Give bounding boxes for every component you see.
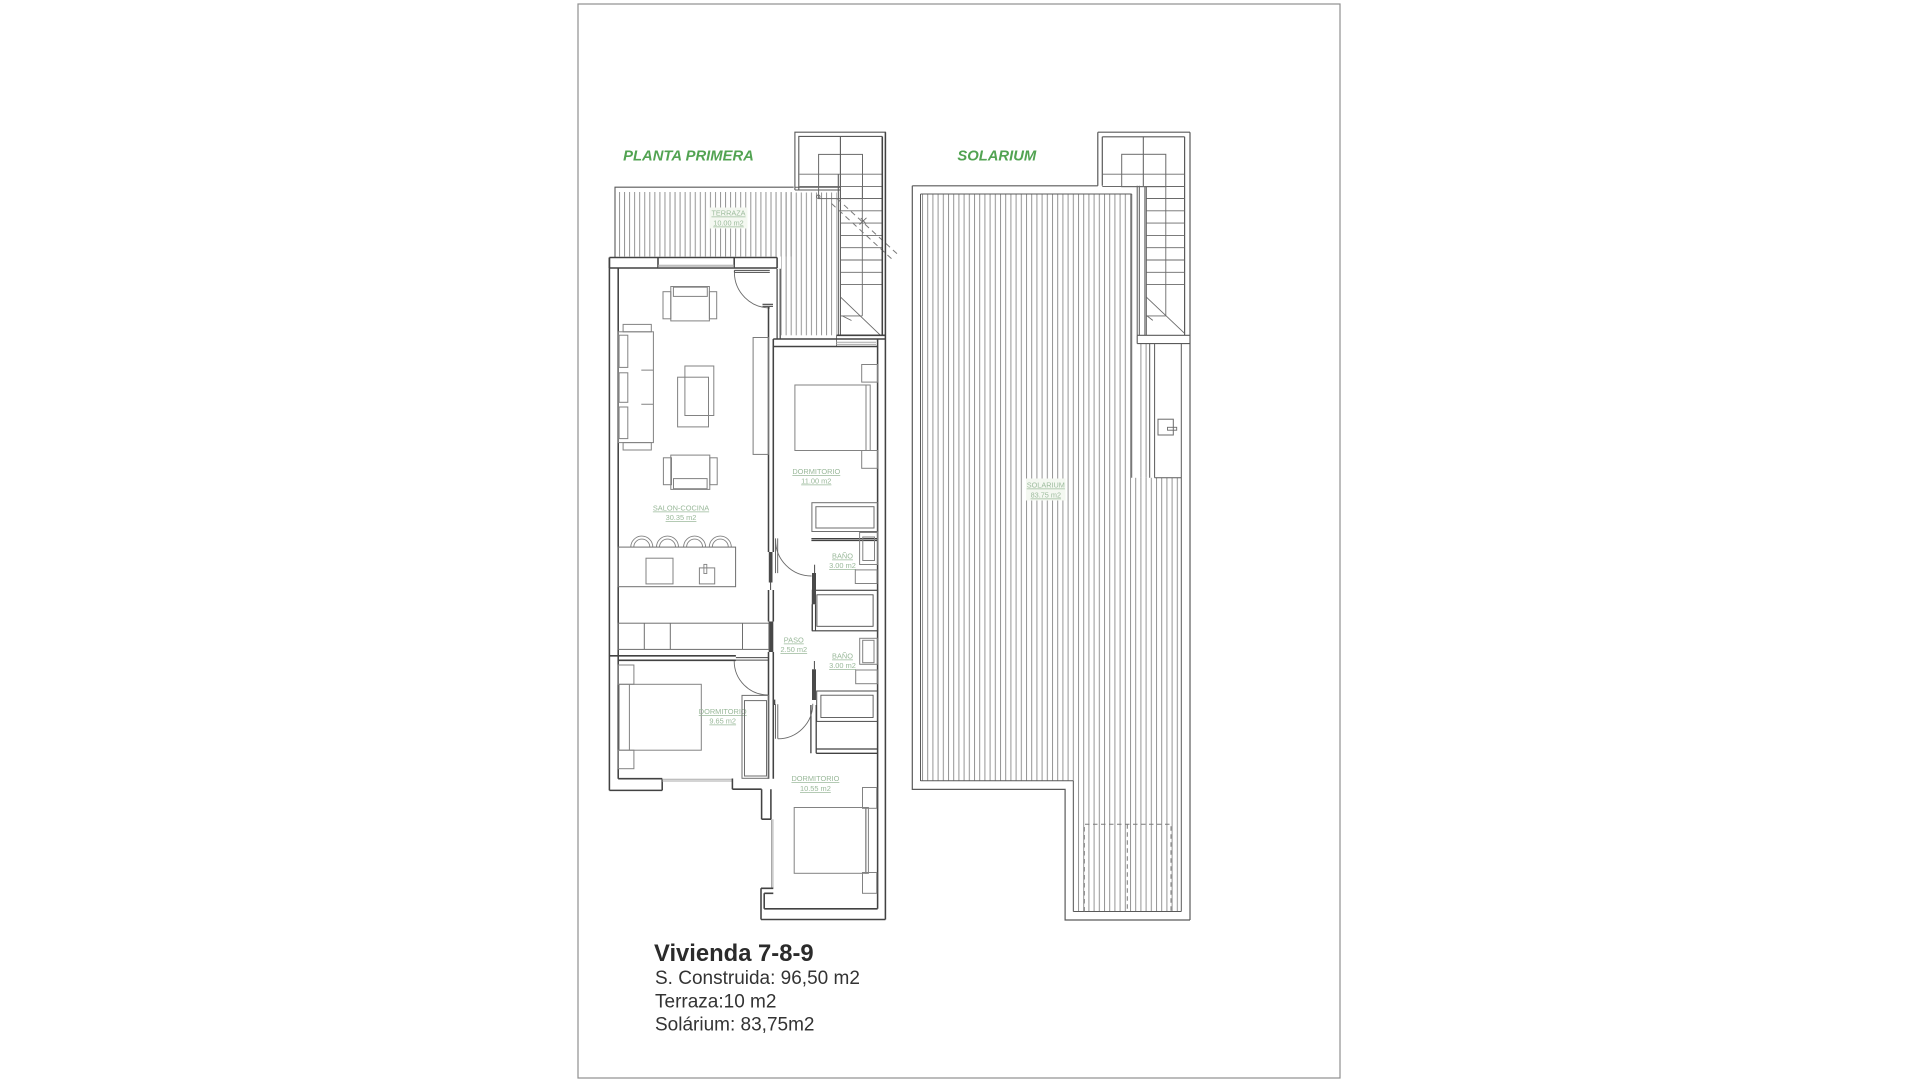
svg-text:DORMITORIO: DORMITORIO — [791, 774, 839, 783]
svg-text:SALON-COCINA: SALON-COCINA — [653, 504, 709, 513]
svg-text:30.35 m2: 30.35 m2 — [666, 513, 697, 522]
svg-text:SOLARIUM: SOLARIUM — [957, 149, 1037, 165]
svg-text:3.00 m2: 3.00 m2 — [829, 561, 856, 570]
svg-text:TERRAZA: TERRAZA — [711, 209, 745, 218]
svg-text:Terraza:10 m2: Terraza:10 m2 — [655, 991, 776, 1012]
svg-text:SOLARIUM: SOLARIUM — [1027, 481, 1065, 490]
svg-text:DORMITORIO: DORMITORIO — [792, 467, 840, 476]
svg-text:DORMITORIO: DORMITORIO — [699, 707, 747, 716]
svg-text:11.00 m2: 11.00 m2 — [801, 477, 831, 486]
svg-text:10.00 m2: 10.00 m2 — [713, 219, 743, 228]
svg-text:83.75 m2: 83.75 m2 — [1031, 491, 1061, 500]
svg-text:9.65 m2: 9.65 m2 — [709, 717, 736, 726]
svg-text:3.00 m2: 3.00 m2 — [829, 661, 856, 670]
svg-text:PLANTA PRIMERA: PLANTA PRIMERA — [623, 149, 754, 165]
svg-text:10.55 m2: 10.55 m2 — [800, 784, 831, 793]
svg-text:S. Construida: 96,50 m2: S. Construida: 96,50 m2 — [655, 968, 860, 989]
svg-text:BAÑO: BAÑO — [832, 652, 853, 661]
svg-text:Solárium: 83,75m2: Solárium: 83,75m2 — [655, 1014, 814, 1035]
svg-text:Vivienda 7-8-9: Vivienda 7-8-9 — [654, 940, 814, 967]
svg-text:BAÑO: BAÑO — [832, 552, 853, 561]
svg-text:PASO: PASO — [784, 636, 804, 645]
svg-text:2.50 m2: 2.50 m2 — [780, 645, 807, 654]
